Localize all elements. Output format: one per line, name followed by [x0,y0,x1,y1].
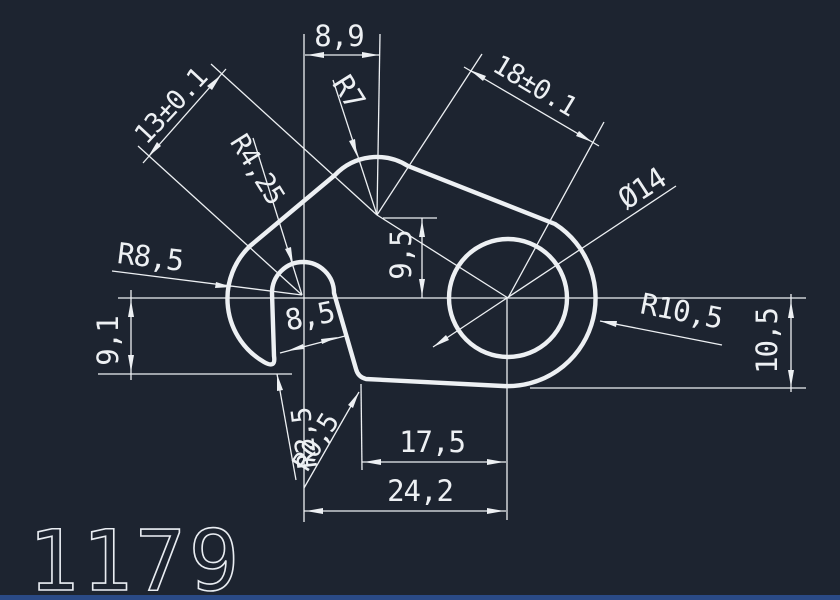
dim-label-9-1: 9,1 [91,316,125,365]
dim-label-9-5: 9,5 [384,230,418,279]
drawing-number: 1179 [28,512,242,600]
cad-drawing-canvas: 8,9 13±0.1 R7 18±0.1 R4,25 R8,5 9,5 8,5 … [0,0,840,600]
dim-label-17-5: 17,5 [399,425,465,459]
dim-label-24-2: 24,2 [387,474,453,508]
technical-drawing: 8,9 13±0.1 R7 18±0.1 R4,25 R8,5 9,5 8,5 … [0,0,840,600]
dim-label-10-5: 10,5 [750,308,784,374]
dim-label-top-width: 8,9 [314,19,363,53]
